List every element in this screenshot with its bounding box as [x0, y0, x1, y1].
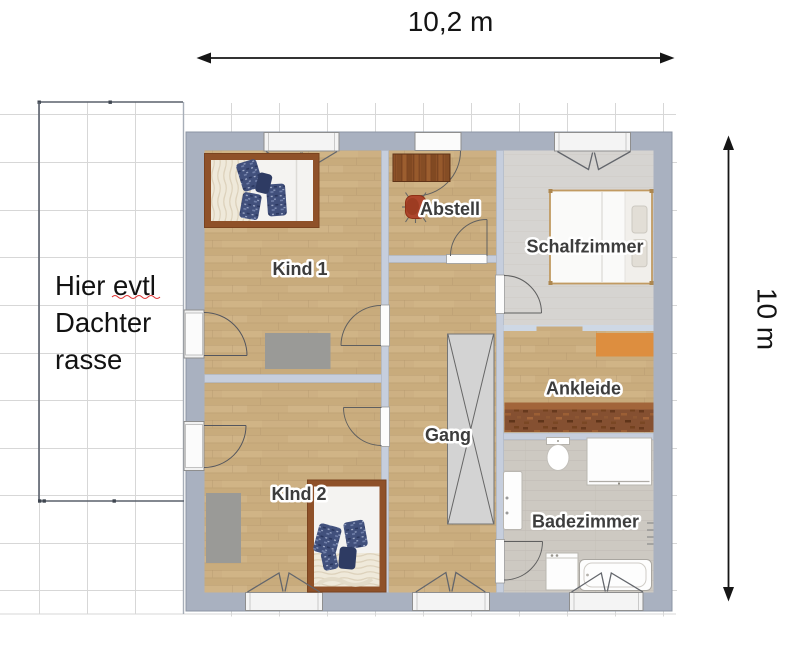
svg-text:Badezimmer: Badezimmer — [532, 512, 639, 532]
svg-text:10,2 m: 10,2 m — [408, 6, 494, 37]
svg-text:Dachter: Dachter — [55, 307, 151, 338]
svg-text:Kind 1: Kind 1 — [272, 259, 327, 279]
svg-text:KInd 2: KInd 2 — [271, 484, 326, 504]
svg-text:rasse: rasse — [55, 344, 122, 375]
svg-text:10 m: 10 m — [752, 288, 783, 350]
svg-text:Gang: Gang — [425, 425, 471, 445]
svg-text:Schalfzimmer: Schalfzimmer — [526, 237, 643, 257]
svg-text:Abstell: Abstell — [420, 199, 480, 219]
svg-text:Ankleide: Ankleide — [546, 379, 621, 399]
